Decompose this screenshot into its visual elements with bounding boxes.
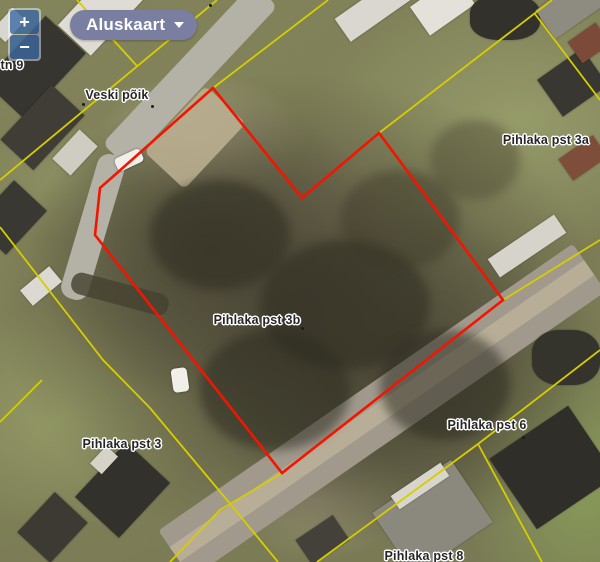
map-label-pihlaka-pst-6: Pihlaka pst 6 xyxy=(447,418,526,432)
cadastral-boundary-line xyxy=(535,14,600,100)
address-point-dot xyxy=(301,327,304,330)
map-label-veski-poik: Veski põik xyxy=(85,88,148,102)
cadastral-layer xyxy=(0,0,600,562)
map-label-pihlaka-pst-3: Pihlaka pst 3 xyxy=(82,437,161,451)
cadastral-boundary-line xyxy=(0,227,278,562)
map-label-pihlaka-pst-3b: Pihlaka pst 3b xyxy=(214,313,301,327)
minus-icon: − xyxy=(19,37,30,57)
address-point-dot xyxy=(209,4,212,7)
address-point-dot xyxy=(522,436,525,439)
cadastral-boundary-line xyxy=(302,0,552,198)
cadastral-boundary-line xyxy=(170,240,600,562)
zoom-in-button[interactable]: + xyxy=(10,10,39,34)
basemap-dropdown-button[interactable]: Aluskaart xyxy=(70,10,197,40)
cadastral-boundary-line xyxy=(317,350,600,562)
zoom-out-button[interactable]: − xyxy=(10,35,39,59)
address-point-dot xyxy=(82,103,85,106)
address-point-dot xyxy=(151,105,154,108)
cadastral-boundary-lines xyxy=(0,0,600,562)
map-label-pihlaka-pst-8: Pihlaka pst 8 xyxy=(384,549,463,562)
cadastral-boundary-line xyxy=(0,380,42,422)
chevron-down-icon xyxy=(174,22,184,28)
map-canvas[interactable]: ki tn 9 Veski põik Pihlaka pst 3a Pihlak… xyxy=(0,0,600,562)
basemap-dropdown-label: Aluskaart xyxy=(86,15,165,35)
zoom-control: + − xyxy=(8,8,41,61)
cadastral-boundary-line xyxy=(478,444,542,562)
plus-icon: + xyxy=(19,12,30,32)
map-label-pihlaka-pst-3a: Pihlaka pst 3a xyxy=(503,133,589,147)
